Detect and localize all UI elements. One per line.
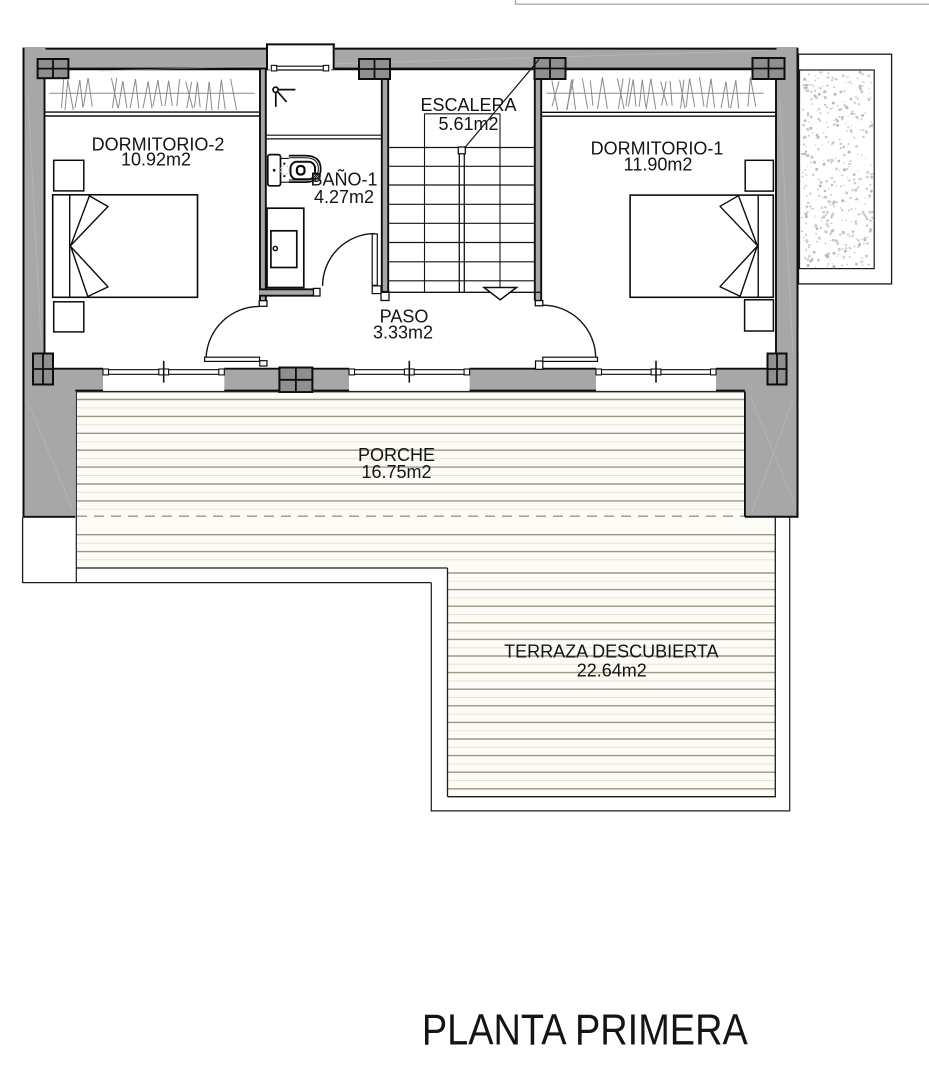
svg-text:22.64m2: 22.64m2 (577, 660, 647, 680)
svg-text:16.75m2: 16.75m2 (361, 462, 431, 482)
svg-text:TERRAZA DESCUBIERTA: TERRAZA DESCUBIERTA (504, 642, 718, 662)
svg-text:10.92m2: 10.92m2 (121, 150, 191, 170)
svg-text:4.27m2: 4.27m2 (314, 187, 374, 207)
svg-text:3.33m2: 3.33m2 (373, 323, 433, 343)
svg-text:5.61m2: 5.61m2 (438, 114, 498, 134)
svg-text:PLANTA PRIMERA: PLANTA PRIMERA (422, 1005, 748, 1054)
svg-text:ESCALERA: ESCALERA (420, 95, 516, 115)
svg-text:11.90m2: 11.90m2 (624, 154, 693, 174)
